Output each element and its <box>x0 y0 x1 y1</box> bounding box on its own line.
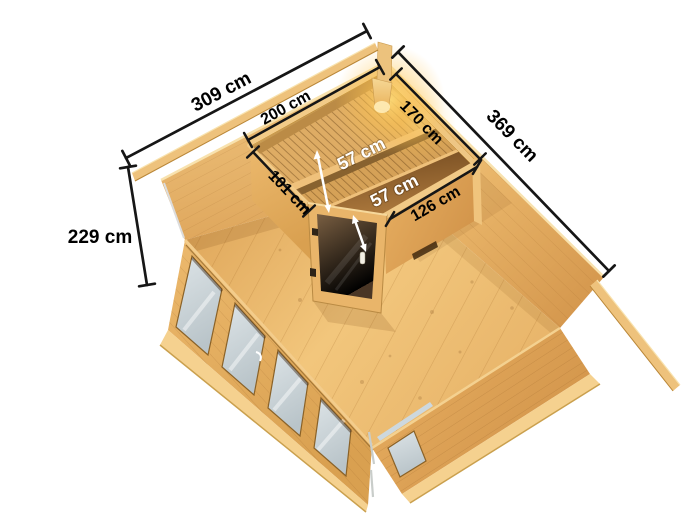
dimension-line <box>128 167 147 285</box>
sauna-cabin-top-view: 309 cm 369 cm 229 cm 200 cm 170 cm 101 c… <box>0 0 700 525</box>
dimension-label-369: 369 cm <box>482 106 542 167</box>
product-dimension-illustration: 309 cm 369 cm 229 cm 200 cm 170 cm 101 c… <box>0 0 700 525</box>
dimension-229: 229 cm <box>68 166 155 287</box>
roof-beam-right <box>590 280 680 391</box>
dimension-label-229: 229 cm <box>68 227 132 248</box>
door-handle <box>360 252 365 264</box>
door-hinge-top <box>312 228 318 236</box>
roof-beam-right-shadow <box>590 286 673 391</box>
sauna-door <box>308 203 387 313</box>
lamp-light-core <box>374 101 390 113</box>
door-hinge-bottom <box>310 268 316 277</box>
south-corner-metal-strip-2 <box>371 470 373 497</box>
roof-beam-right-highlight <box>597 280 680 385</box>
